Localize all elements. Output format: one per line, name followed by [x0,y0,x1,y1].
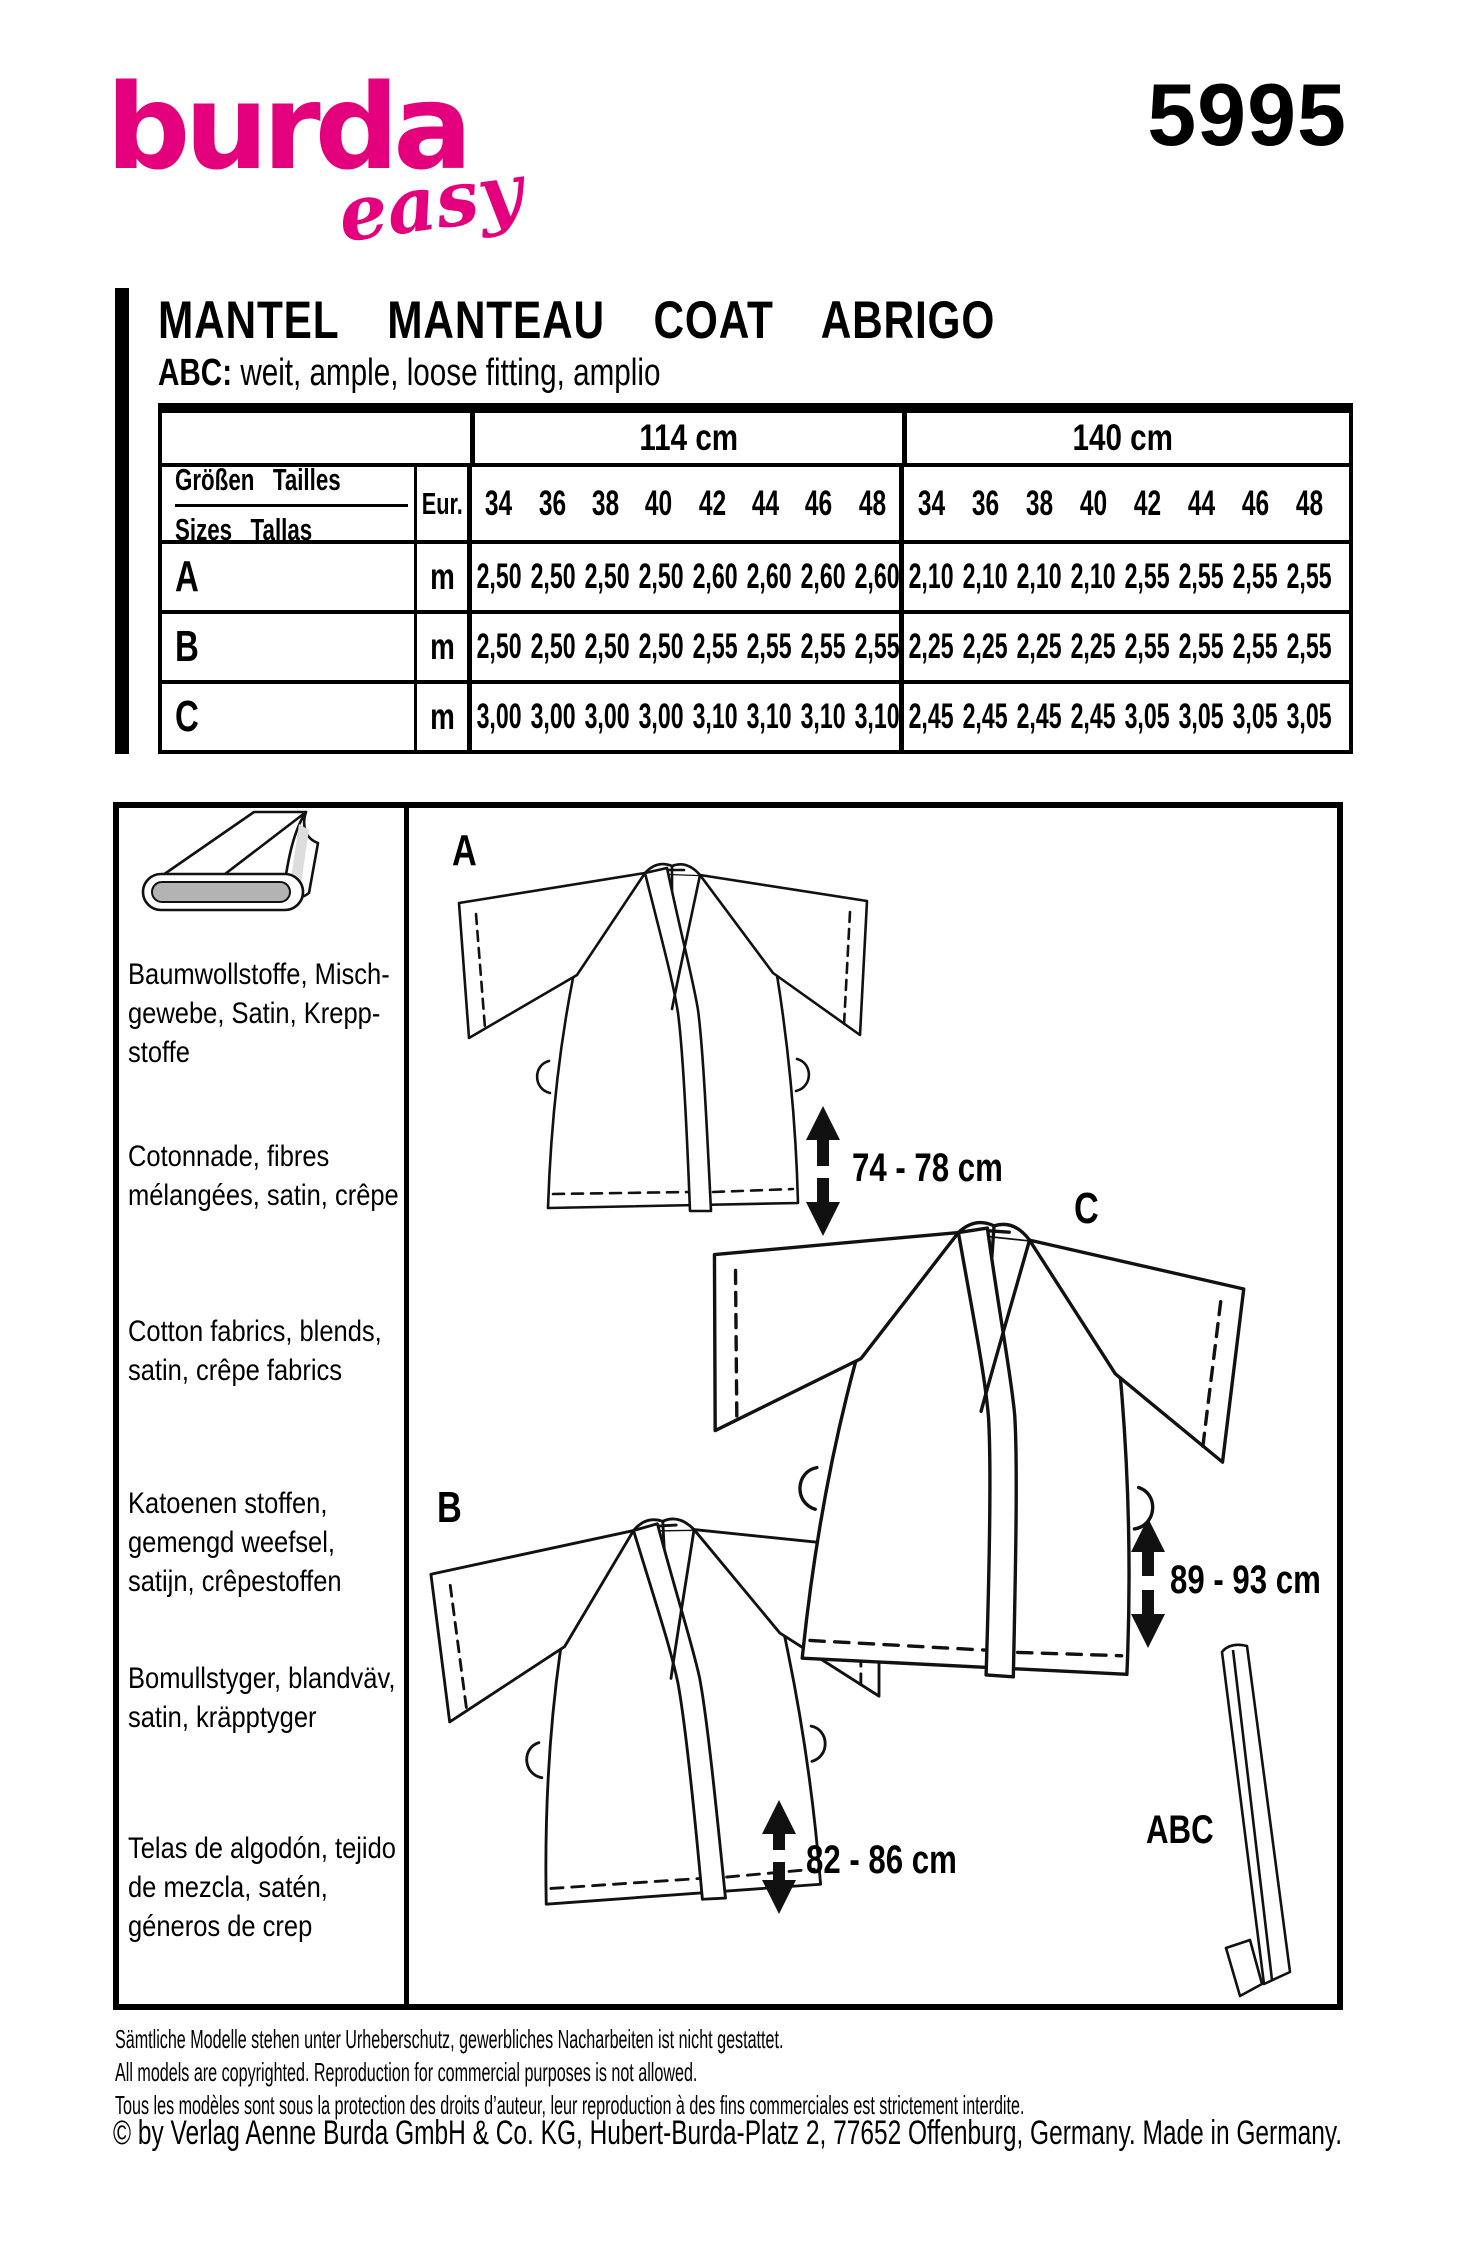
size-cell: 34 [904,467,958,540]
unit-cell: m [417,684,472,750]
value-cell: 3,00 [634,684,688,750]
value-cell: 3,05 [1174,684,1228,750]
value-cell: 2,10 [1066,544,1120,610]
size-cell: 46 [792,467,845,540]
size-cell: 38 [1012,467,1066,540]
fabric-requirements-table: 114 cm 140 cm Größen Tailles Sizes Talla… [158,403,1353,754]
value-cell: 2,10 [958,544,1012,610]
value-cell: 2,55 [742,614,796,680]
view-label-cell: B [162,614,417,680]
fabric-text-nl: Katoenen stoffen,gemengd weefsel,satijn,… [128,1484,403,1601]
belt-abc-label: ABC [1146,1808,1233,1853]
value-cell: 2,50 [580,544,634,610]
length-label-a: 74 - 78 cm [852,1146,1045,1191]
fabric-text-line: géneros de crep [128,1907,362,1946]
fabric-text-line: Baumwollstoffe, Misch- [128,955,362,994]
value-cell: 2,45 [958,684,1012,750]
panel-divider [404,802,409,2010]
size-cell: 38 [579,467,632,540]
value-cell: 2,50 [526,614,580,680]
empty-header-cell [162,413,475,463]
fabric-text-line: de mezcla, satén, [128,1868,362,1907]
value-cell: 2,55 [1282,544,1336,610]
value-cell: 2,60 [688,544,742,610]
values-a-114: 2,502,502,502,502,602,602,602,60 [472,544,904,610]
fabric-text-line: satijn, crêpestoffen [128,1562,362,1601]
view-label-cell: A [162,544,417,610]
value-cell: 2,25 [1012,614,1066,680]
value-cell: 3,10 [688,684,742,750]
width-114-header: 114 cm [475,413,907,463]
pattern-envelope-back: burda easy 5995 MANTEL MANTEAU COAT ABRI… [0,0,1465,2244]
value-cell: 2,50 [634,544,688,610]
value-cell: 2,50 [580,614,634,680]
value-cell: 2,25 [1066,614,1120,680]
garment-title: MANTEL MANTEAU COAT ABRIGO [158,290,1204,351]
value-cell: 2,10 [1012,544,1066,610]
size-cell: 42 [1120,467,1174,540]
length-label-b: 82 - 86 cm [806,1838,999,1883]
view-c-label: C [1074,1184,1106,1234]
value-cell: 2,55 [796,614,850,680]
table-row-view-c: C m 3,003,003,003,003,103,103,103,10 2,4… [162,684,1349,750]
value-cell: 2,55 [1282,614,1336,680]
sizes-header-114: 3436384042444648 [472,467,904,540]
value-cell: 3,00 [526,684,580,750]
eur-label-cell: Eur. [417,467,472,540]
size-cell: 44 [1174,467,1228,540]
size-cell: 36 [958,467,1012,540]
view-a-label: A [452,826,484,876]
values-c-114: 3,003,003,003,003,103,103,103,10 [472,684,904,750]
value-cell: 3,05 [1120,684,1174,750]
sizes-header-140: 3436384042444648 [904,467,1336,540]
value-cell: 3,00 [580,684,634,750]
value-cell: 2,55 [1174,614,1228,680]
fabric-text-line: Katoenen stoffen, [128,1484,362,1523]
table-row-view-b: B m 2,502,502,502,502,552,552,552,55 2,2… [162,614,1349,684]
size-cell: 36 [525,467,578,540]
size-cell: 34 [472,467,525,540]
value-cell: 2,50 [526,544,580,610]
value-cell: 3,10 [850,684,904,750]
table-top-bar [162,403,1349,413]
views-desc-text: weit, ample, loose fitting, amplio [240,352,660,394]
value-cell: 2,50 [472,544,526,610]
value-cell: 2,60 [796,544,850,610]
table-row-view-a: A m 2,502,502,502,502,602,602,602,60 2,1… [162,544,1349,614]
fabric-text-en: Cotton fabrics, blends,satin, crêpe fabr… [128,1312,403,1390]
unit-cell: m [417,614,472,680]
value-cell: 3,00 [472,684,526,750]
value-cell: 3,05 [1282,684,1336,750]
value-cell: 2,45 [1012,684,1066,750]
views-description: ABC: weit, ample, loose fitting, amplio [158,352,802,395]
value-cell: 2,50 [634,614,688,680]
pattern-number: 5995 [1147,64,1347,166]
fabric-text-es: Telas de algodón, tejidode mezcla, satén… [128,1829,403,1946]
size-cell: 46 [1228,467,1282,540]
value-cell: 2,55 [1228,614,1282,680]
fabric-text-sv: Bomullstyger, blandväv,satin, kräpptyger [128,1659,403,1737]
value-cell: 2,50 [472,614,526,680]
unit-cell: m [417,544,472,610]
value-cell: 2,60 [742,544,796,610]
fabric-text-line: Cotton fabrics, blends, [128,1312,362,1351]
fabric-text-fr: Cotonnade, fibresmélangées, satin, crêpe [128,1137,403,1215]
sizes-label-cell: Größen Tailles Sizes Tallas [162,467,417,540]
fabric-text-line: Cotonnade, fibres [128,1137,362,1176]
fabric-text-line: Telas de algodón, tejido [128,1829,362,1868]
size-cell: 44 [739,467,792,540]
value-cell: 2,55 [850,614,904,680]
fabric-text-line: gewebe, Satin, Krepp- [128,994,362,1033]
value-cell: 2,55 [1174,544,1228,610]
views-label: ABC: [158,352,232,394]
values-b-114: 2,502,502,502,502,552,552,552,55 [472,614,904,680]
fabric-text-line: satin, kräpptyger [128,1698,362,1737]
view-label-cell: C [162,684,417,750]
copyright-line-de: Sämtliche Modelle stehen unter Urhebersc… [115,2024,1193,2055]
length-label-c: 89 - 93 cm [1170,1558,1363,1603]
fabric-text-line: stoffe [128,1033,362,1072]
copyright-line-publisher: © by Verlag Aenne Burda GmbH & Co. KG, H… [113,2114,1465,2153]
width-140-header: 140 cm [907,413,1339,463]
fabric-text-line: gemengd weefsel, [128,1523,362,1562]
size-cell: 40 [632,467,685,540]
title-accent-bar [115,288,129,754]
copyright-line-en: All models are copyrighted. Reproduction… [115,2057,1054,2088]
sizes-header-row: Größen Tailles Sizes Tallas Eur. 3436384… [162,467,1349,544]
values-c-140: 2,452,452,452,453,053,053,053,05 [904,684,1336,750]
values-b-140: 2,252,252,252,252,552,552,552,55 [904,614,1336,680]
value-cell: 2,10 [904,544,958,610]
value-cell: 2,25 [904,614,958,680]
value-cell: 3,10 [742,684,796,750]
value-cell: 2,25 [958,614,1012,680]
size-cell: 48 [1282,467,1336,540]
value-cell: 2,45 [904,684,958,750]
fabric-text-line: mélangées, satin, crêpe [128,1176,362,1215]
value-cell: 2,45 [1066,684,1120,750]
value-cell: 2,55 [1120,614,1174,680]
value-cell: 2,60 [850,544,904,610]
value-cell: 2,55 [1120,544,1174,610]
size-cell: 42 [686,467,739,540]
fabric-text-de: Baumwollstoffe, Misch-gewebe, Satin, Kre… [128,955,403,1072]
size-cell: 48 [846,467,899,540]
value-cell: 2,55 [1228,544,1282,610]
view-b-label: B [437,1483,469,1533]
fabric-text-line: satin, crêpe fabrics [128,1351,362,1390]
value-cell: 2,55 [688,614,742,680]
values-a-140: 2,102,102,102,102,552,552,552,55 [904,544,1336,610]
fabric-text-line: Bomullstyger, blandväv, [128,1659,362,1698]
value-cell: 3,05 [1228,684,1282,750]
value-cell: 3,10 [796,684,850,750]
size-cell: 40 [1066,467,1120,540]
